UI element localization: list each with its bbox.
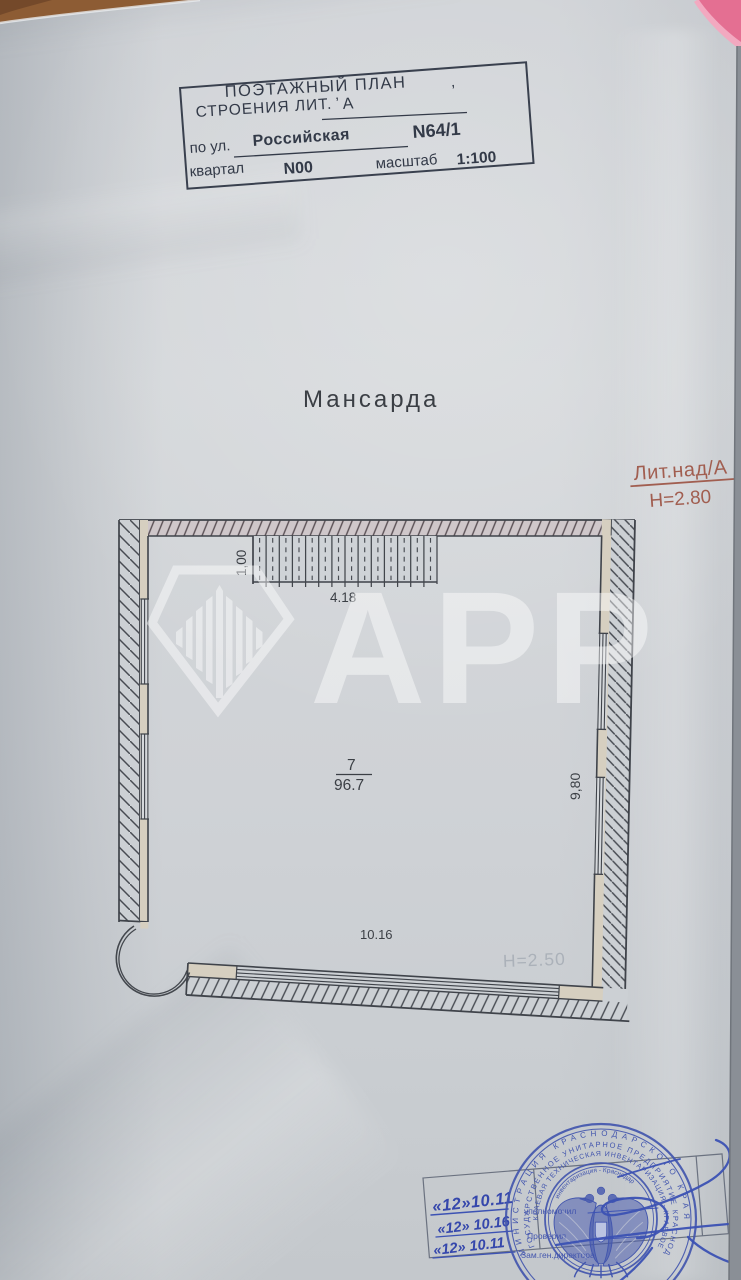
svg-text:Мансарда: Мансарда [303,386,439,413]
svg-text:Российская: Российская [252,126,350,150]
svg-text:N64/1: N64/1 [412,119,461,142]
svg-text:Н=2.80: Н=2.80 [649,487,712,512]
svg-text:N00: N00 [283,159,314,178]
svg-text:9,80: 9,80 [567,773,583,800]
svg-text:’: ’ [335,95,339,112]
svg-text:10.16: 10.16 [360,927,393,942]
svg-text:СТРОЕНИЯ ЛИТ.: СТРОЕНИЯ ЛИТ. [195,96,333,121]
svg-text:Н=2.50: Н=2.50 [503,949,567,971]
svg-text:’: ’ [451,83,456,100]
svg-text:А: А [342,95,354,113]
svg-text:АРР: АРР [310,558,660,737]
svg-text:7: 7 [347,757,356,774]
svg-text:масштаб: масштаб [375,151,438,172]
svg-text:1:100: 1:100 [456,149,497,169]
svg-text:квартал: квартал [189,160,245,181]
svg-text:по ул.: по ул. [189,137,231,157]
svg-text:96.7: 96.7 [334,777,364,794]
